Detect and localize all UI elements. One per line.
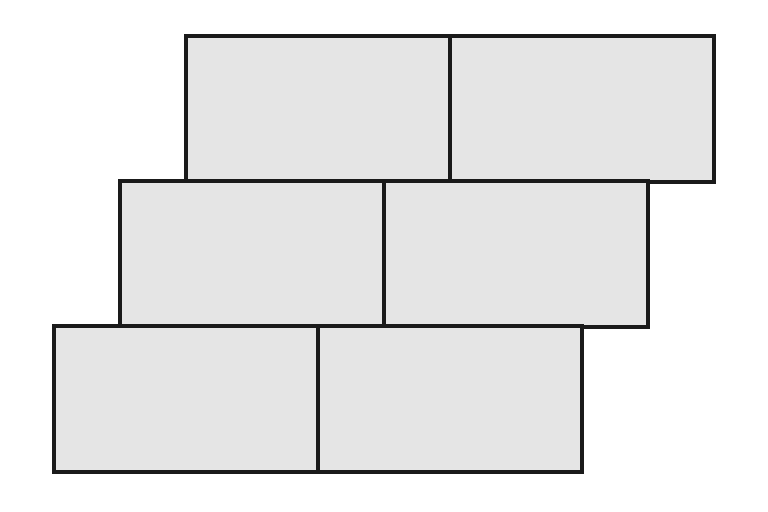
brick-row2-right — [384, 181, 648, 327]
brick-row3-right — [318, 326, 582, 472]
staircase-brick-diagram — [0, 0, 768, 512]
brick-row1-left — [186, 36, 450, 182]
brick-row3-left — [54, 326, 318, 472]
brick-row2-left — [120, 181, 384, 327]
brick-row1-right — [450, 36, 714, 182]
diagram-canvas — [0, 0, 768, 512]
